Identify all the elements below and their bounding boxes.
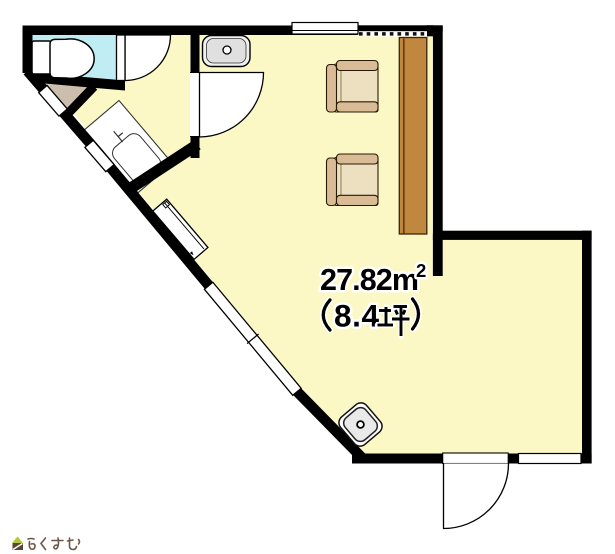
- svg-text:8.4: 8.4: [334, 298, 380, 334]
- svg-text:27.82m: 27.82m: [320, 263, 418, 297]
- svg-text:2: 2: [416, 260, 426, 281]
